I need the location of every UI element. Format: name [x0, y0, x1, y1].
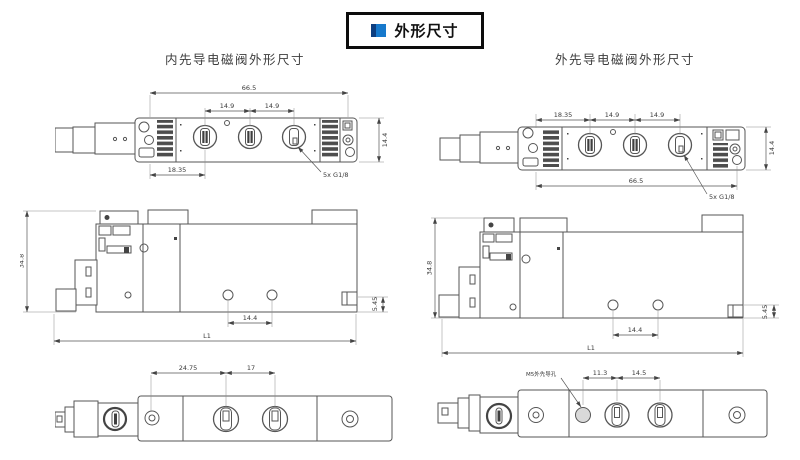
dim-port-pitch-2: 14.9: [650, 111, 664, 119]
dim-length: L1: [587, 344, 595, 352]
left-column-heading: 内先导电磁阀外形尺寸: [165, 49, 305, 68]
valve-body-top: [440, 127, 745, 170]
dim-total-width: 66.5: [629, 177, 643, 185]
internal-pilot-top-view: 66.5 14.9 14.9 18.35 14.4 5x G1/8: [55, 80, 400, 200]
external-pilot-bottom-view: 11.3 14.5 M5外先导孔: [430, 355, 790, 460]
external-pilot-side-view: 34.8 14.4 L1 5.45: [425, 195, 800, 365]
valve-body-bottom: [55, 396, 392, 441]
dim-height: 34.8: [426, 261, 434, 275]
cable-plug: [56, 289, 76, 311]
dim-depth: 14.4: [381, 133, 389, 147]
page-title: 外形尺寸: [394, 20, 458, 41]
dim-port-pitch-1: 14.9: [605, 111, 619, 119]
dim-port-pitch-2: 14.9: [265, 102, 279, 110]
dim-length: L1: [203, 332, 211, 340]
rib-stack-left: [543, 129, 559, 167]
manual-override-knob: [104, 408, 126, 430]
internal-pilot-side-view: 34.8 14.4 L1 5.45: [20, 195, 410, 360]
valve-body-bottom: [438, 390, 767, 437]
valve-body-side: [439, 215, 743, 318]
dim-1: 11.3: [593, 369, 607, 377]
dim-left-offset: 18.35: [168, 166, 187, 174]
pilot-hole-note: M5外先导孔: [526, 370, 557, 378]
dim-base-step: 5.45: [761, 305, 769, 319]
rib-stack-left: [157, 120, 173, 158]
dim-2: 14.5: [632, 369, 646, 377]
external-pilot-hole: [576, 408, 591, 423]
manual-override-knob: [487, 404, 511, 428]
rib-stack-right: [322, 120, 338, 158]
dim-base-step: 5.45: [371, 297, 379, 311]
valve-body-side: [56, 210, 357, 312]
drawing-page: 外形尺寸 内先导电磁阀外形尺寸 外先导电磁阀外形尺寸: [0, 0, 800, 460]
dim-hole-pitch: 14.4: [628, 326, 642, 334]
section-title-box: 外形尺寸: [346, 12, 484, 49]
internal-pilot-bottom-view: 24.75 17: [55, 360, 395, 460]
dim-mid: 17: [247, 364, 255, 372]
valve-body-top: [55, 118, 357, 162]
cable-plug: [439, 295, 459, 317]
dim-left: 24.75: [179, 364, 198, 372]
dim-hole-pitch: 14.4: [243, 314, 257, 322]
dim-port-pitch-1: 14.9: [220, 102, 234, 110]
dim-left-offset: 18.35: [554, 111, 573, 119]
dim-total-width: 66.5: [242, 84, 256, 92]
dim-height: 34.8: [20, 254, 26, 268]
blue-square-icon: [371, 24, 386, 37]
rib-stack-right: [713, 143, 728, 168]
ports-note: 5x G1/8: [323, 171, 349, 179]
external-pilot-top-view: 18.35 14.9 14.9 66.5 14.4 5x G1/8: [430, 80, 800, 210]
right-column-heading: 外先导电磁阀外形尺寸: [555, 49, 695, 68]
dim-depth: 14.4: [768, 141, 776, 155]
